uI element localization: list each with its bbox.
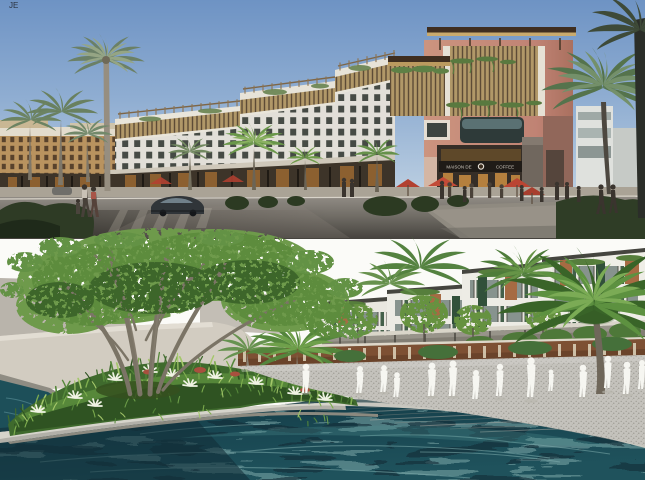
svg-text:COFFEE: COFFEE [496, 165, 514, 170]
svg-text:JE: JE [9, 1, 18, 10]
svg-text:MAISON DE: MAISON DE [446, 165, 471, 170]
